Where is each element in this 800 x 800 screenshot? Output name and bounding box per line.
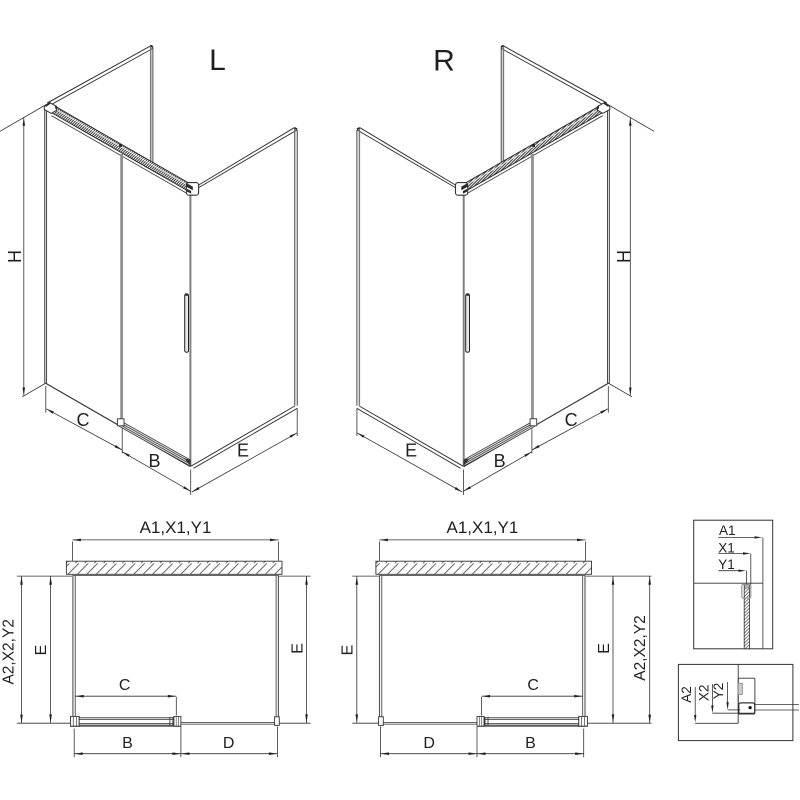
svg-text:A1: A1 (719, 523, 736, 538)
svg-text:C: C (565, 410, 578, 430)
svg-text:E: E (405, 441, 417, 461)
svg-text:Y2: Y2 (711, 683, 726, 700)
svg-text:E: E (340, 645, 357, 656)
svg-text:R: R (433, 45, 455, 78)
svg-text:L: L (209, 44, 226, 77)
svg-text:B: B (525, 735, 536, 752)
svg-text:D: D (423, 735, 435, 752)
svg-text:E: E (237, 441, 249, 461)
svg-text:A2: A2 (679, 686, 694, 703)
svg-text:B: B (494, 451, 506, 471)
svg-text:C: C (527, 677, 539, 694)
svg-text:H: H (614, 250, 634, 263)
svg-text:E: E (596, 643, 613, 654)
svg-text:A1,X1,Y1: A1,X1,Y1 (140, 518, 212, 537)
svg-text:D: D (223, 735, 235, 752)
svg-text:E: E (33, 645, 50, 656)
svg-text:X2: X2 (697, 685, 712, 702)
svg-text:X1: X1 (718, 540, 735, 555)
svg-text:C: C (77, 410, 90, 430)
svg-text:C: C (119, 677, 131, 694)
svg-text:B: B (122, 735, 133, 752)
svg-text:A2,X2,Y2: A2,X2,Y2 (632, 615, 649, 681)
svg-text:E: E (290, 643, 307, 654)
svg-text:B: B (148, 451, 160, 471)
svg-text:A1,X1,Y1: A1,X1,Y1 (446, 518, 518, 537)
svg-text:Y1: Y1 (718, 557, 735, 572)
svg-text:H: H (5, 250, 25, 263)
svg-text:A2,X2,Y2: A2,X2,Y2 (1, 619, 18, 685)
